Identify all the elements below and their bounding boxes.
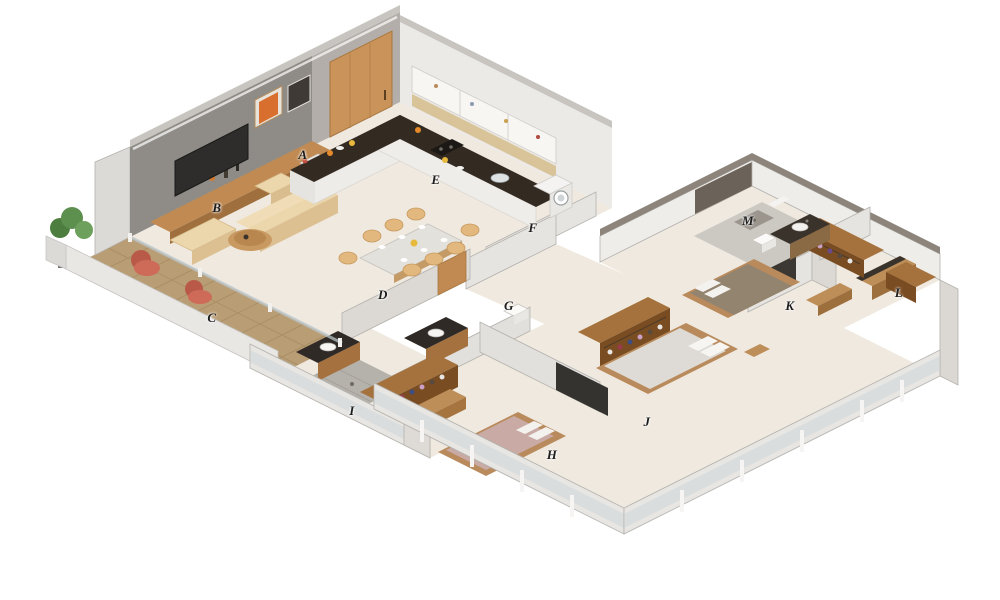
wardrobe-l-clothes — [828, 249, 833, 254]
dining-chair — [425, 253, 443, 265]
floorplan-screenshot: A B C D E F G H I J K L M — [0, 0, 1000, 600]
kitchen-sink — [491, 174, 509, 183]
window-post — [740, 460, 744, 482]
east-wall-cap — [940, 280, 958, 385]
cabinet-contents — [440, 375, 445, 380]
balcony-chair-1-seat — [134, 260, 160, 276]
window-post — [520, 470, 524, 492]
food-item-1 — [415, 127, 421, 133]
dining-chair — [385, 219, 403, 231]
place-setting — [441, 238, 448, 242]
window-post — [470, 445, 474, 467]
window-post — [420, 420, 424, 442]
dining-chair — [407, 208, 425, 220]
coffee-table-top — [234, 230, 266, 246]
dining-chair — [363, 230, 381, 242]
dining-chair — [447, 242, 465, 254]
wardrobe-l-clothes — [848, 259, 853, 264]
place-setting — [421, 248, 428, 252]
glass-post — [338, 338, 342, 347]
glass-post — [198, 268, 202, 277]
glass-post — [128, 233, 132, 242]
dining-chair — [339, 252, 357, 264]
window-post — [800, 430, 804, 452]
wardrobe-j-clothes — [618, 345, 623, 350]
food-item-4 — [442, 157, 448, 163]
shower-m-drain — [752, 218, 756, 222]
plant-leaves-3 — [75, 221, 93, 239]
place-setting — [379, 245, 386, 249]
faucet-m — [806, 220, 809, 223]
hob-burner-2 — [449, 145, 453, 149]
cabinet-contents — [410, 390, 415, 395]
center-dish — [411, 240, 418, 247]
hob-burner-1 — [439, 147, 443, 151]
dining-chair — [461, 224, 479, 236]
balcony-chair-2-seat — [188, 290, 212, 304]
plate-1 — [336, 146, 344, 150]
food-item-3 — [349, 140, 355, 146]
cabinet-contents — [420, 385, 425, 390]
shower-drain — [350, 382, 354, 386]
place-setting — [419, 225, 426, 229]
wardrobe-j-clothes — [638, 335, 643, 340]
wardrobe-l-clothes — [838, 254, 843, 259]
basin-1 — [320, 343, 336, 351]
place-setting — [401, 258, 408, 262]
dining-chair — [403, 264, 421, 276]
glass-post — [268, 303, 272, 312]
wardrobe-j-clothes — [648, 330, 653, 335]
cabinet-item-1 — [434, 84, 438, 88]
basin-2 — [428, 329, 444, 337]
washer-door-glass — [558, 195, 565, 202]
window-post — [900, 380, 904, 402]
coffee-table-decor — [244, 235, 249, 240]
balcony-parapet-end — [46, 236, 66, 269]
floorplan-canvas — [0, 0, 1000, 600]
cabinet-contents — [430, 380, 435, 385]
wardrobe-j-clothes — [658, 325, 663, 330]
food-item-2 — [327, 150, 333, 156]
window-post — [680, 490, 684, 512]
left-gable-wall — [95, 147, 130, 255]
cabinet-item-3 — [504, 119, 508, 123]
plate-2 — [456, 166, 464, 170]
window-post — [570, 495, 574, 517]
basin-m — [792, 223, 808, 231]
food-item-5 — [303, 159, 308, 164]
window-post — [860, 400, 864, 422]
cabinet-item-4 — [536, 135, 540, 139]
place-setting — [399, 235, 406, 239]
cabinet-item-2 — [470, 102, 474, 106]
wardrobe-j-clothes — [628, 340, 633, 345]
wardrobe-j-clothes — [608, 350, 613, 355]
